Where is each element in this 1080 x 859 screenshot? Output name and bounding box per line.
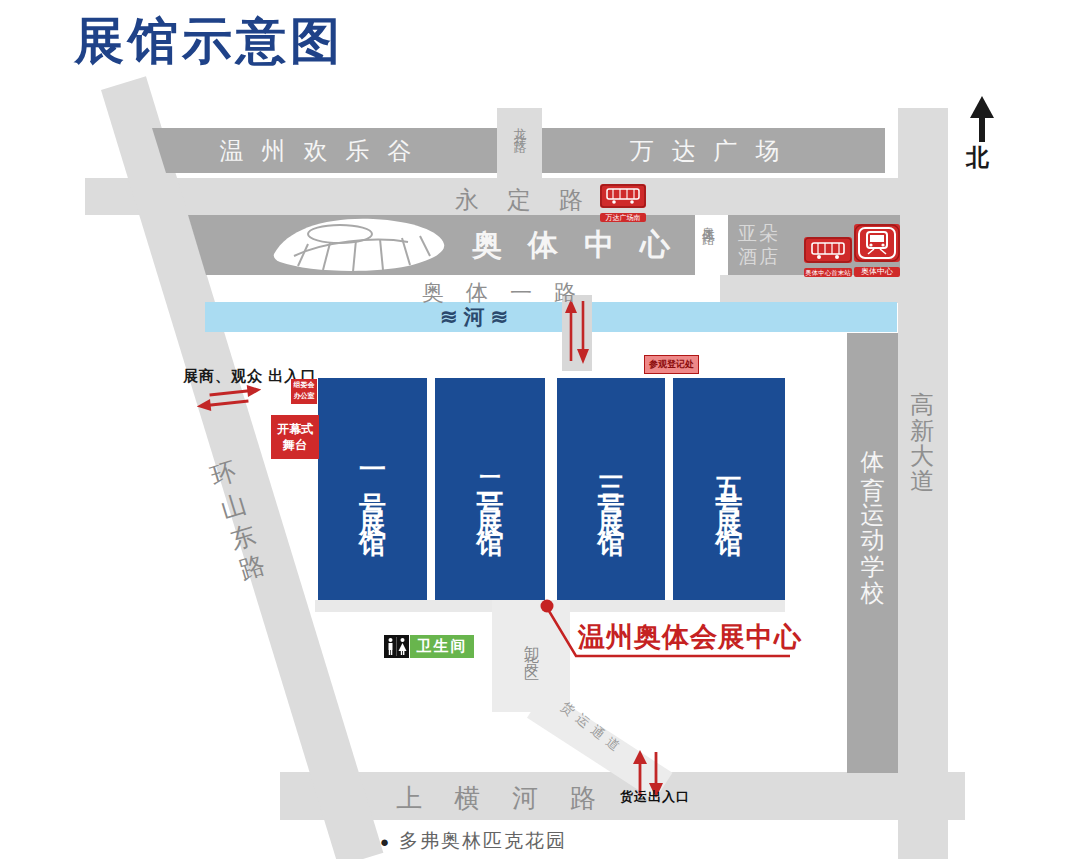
north-label: 北 xyxy=(966,142,989,173)
committee-office-box: 组委会 办公室 xyxy=(291,379,317,404)
freight-gate-label: 货运出入口 xyxy=(620,788,690,806)
bullet-dot: ● xyxy=(380,833,391,850)
page-title: 展馆示意图 xyxy=(74,8,344,75)
atour-hotel-block: 亚朵 酒店 奥体中心首末站 xyxy=(728,215,900,275)
aoti-2nd-road-label: 奥体二路 xyxy=(699,217,717,225)
venue-map: 展馆示意图 北 龙祥路 温州欢乐谷 万达广场 奥体中心 奥体二路 xyxy=(0,0,1080,859)
longxiang-road-band: 龙祥路 xyxy=(497,108,542,178)
wanda-south-stop-sign: 万达广场南 xyxy=(600,184,646,222)
aoti-1st-road-label: 奥体一路 xyxy=(422,278,598,308)
opening-stage-box: 开幕式 舞台 xyxy=(271,415,319,459)
wanda-plaza-block: 万达广场 xyxy=(542,128,885,173)
opening-stage-line2: 舞台 xyxy=(277,437,313,453)
happy-valley-block: 温州欢乐谷 xyxy=(152,128,497,173)
wanda-plaza-label: 万达广场 xyxy=(630,135,798,167)
bus-icon xyxy=(600,184,646,208)
wanda-south-stop-label: 万达广场南 xyxy=(600,213,646,222)
visitor-registration-badge: 参观登记处 xyxy=(644,355,699,374)
atour-hotel-line2: 酒店 xyxy=(738,245,780,268)
hall-1: 一号展馆 xyxy=(318,378,427,600)
hall-3-label: 三号展馆 xyxy=(593,455,629,523)
hall-2: 二号展馆 xyxy=(435,378,545,600)
happy-valley-label: 温州欢乐谷 xyxy=(220,135,430,167)
brt-terminal-sign: 奥体中心首末站 xyxy=(804,237,852,277)
bus-icon xyxy=(804,237,852,263)
gaoxin-avenue-band xyxy=(898,108,948,859)
north-arrow-icon xyxy=(960,96,1004,142)
aoti-center-label: 奥体中心 xyxy=(472,225,696,266)
hall-3: 三号展馆 xyxy=(557,378,665,600)
committee-office-line1: 组委会 xyxy=(291,379,317,390)
committee-office-line2: 办公室 xyxy=(291,390,317,401)
road-junction-patch xyxy=(720,275,948,303)
atour-hotel-line1: 亚朵 xyxy=(738,222,780,245)
expo-center-name: 温州奥体会展中心 xyxy=(578,619,802,655)
hall-5: 五号展馆 xyxy=(673,378,785,600)
gaoxin-avenue-label: 高新大道 xyxy=(906,372,938,476)
yongding-road-label: 永定路 xyxy=(455,184,611,216)
stadium-icon xyxy=(268,216,458,274)
hall-1-label: 一号展馆 xyxy=(355,455,391,523)
toilet-badge: 卫生间 xyxy=(410,635,474,658)
sports-school-label: 体育运动学校 xyxy=(857,431,889,587)
sports-school-block: 体育运动学校 xyxy=(847,333,898,773)
shanghenghe-road-label: 上横河路 xyxy=(396,781,628,816)
metro-icon xyxy=(854,224,900,262)
atour-hotel-label: 亚朵 酒店 xyxy=(738,222,780,268)
hall-5-label: 五号展馆 xyxy=(711,455,747,523)
brt-terminal-label: 奥体中心首末站 xyxy=(804,268,852,277)
metro-station-sign: 奥体中心 xyxy=(854,224,900,277)
toilet-icon xyxy=(384,635,409,658)
hall-2-label: 二号展馆 xyxy=(472,455,508,523)
dove-olympic-garden-text: 多弗奥林匹克花园 xyxy=(399,830,567,851)
aoti-center-block: 奥体中心 xyxy=(188,215,695,275)
opening-stage-line1: 开幕式 xyxy=(277,421,313,437)
dove-olympic-garden-label: ●多弗奥林匹克花园 xyxy=(380,828,567,854)
metro-station-label: 奥体中心 xyxy=(854,267,900,277)
longxiang-road-label: 龙祥路 xyxy=(511,117,529,138)
